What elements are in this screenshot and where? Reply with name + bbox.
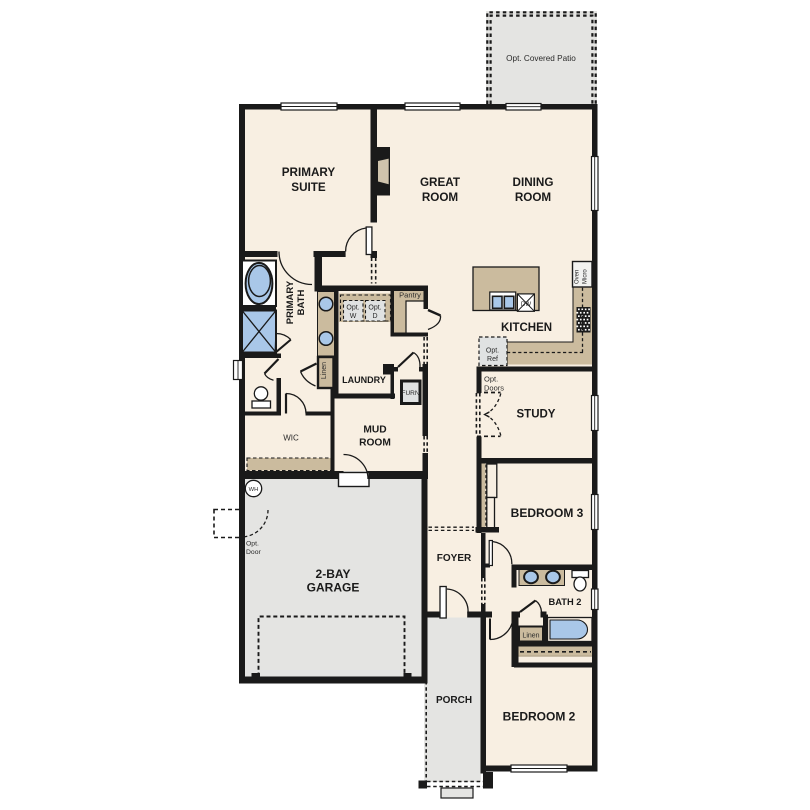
- svg-text:Opt.: Opt.: [486, 348, 499, 355]
- svg-text:Doors: Doors: [484, 384, 504, 393]
- svg-text:PRIMARY: PRIMARY: [285, 280, 296, 324]
- svg-text:DW: DW: [521, 301, 531, 308]
- svg-text:Opt.: Opt.: [346, 305, 359, 312]
- svg-text:Linen: Linen: [321, 362, 328, 379]
- svg-text:Ref: Ref: [487, 356, 498, 363]
- svg-text:LAUNDRY: LAUNDRY: [342, 375, 386, 385]
- svg-text:Opt.: Opt.: [246, 541, 259, 548]
- svg-text:WH: WH: [249, 487, 259, 493]
- svg-text:GARAGE: GARAGE: [307, 581, 360, 595]
- svg-text:BEDROOM 2: BEDROOM 2: [503, 710, 576, 724]
- svg-text:FURN: FURN: [401, 390, 419, 397]
- svg-text:ROOM: ROOM: [515, 191, 551, 204]
- svg-text:2-BAY: 2-BAY: [316, 567, 351, 581]
- svg-text:PORCH: PORCH: [436, 695, 472, 706]
- svg-text:Opt.: Opt.: [484, 375, 498, 384]
- svg-text:ROOM: ROOM: [359, 438, 391, 449]
- svg-text:KITCHEN: KITCHEN: [501, 322, 552, 334]
- svg-text:GREAT: GREAT: [420, 176, 461, 189]
- svg-text:ROOM: ROOM: [422, 191, 458, 204]
- svg-text:Micro: Micro: [583, 269, 589, 284]
- svg-text:Door: Door: [246, 549, 261, 556]
- svg-text:BATH: BATH: [296, 290, 307, 316]
- svg-text:Linen: Linen: [522, 633, 539, 640]
- svg-text:PRIMARY: PRIMARY: [282, 166, 336, 179]
- svg-text:SUITE: SUITE: [291, 181, 326, 194]
- svg-text:BEDROOM 3: BEDROOM 3: [511, 506, 584, 520]
- svg-text:Opt. Covered Patio: Opt. Covered Patio: [506, 54, 576, 63]
- svg-text:FOYER: FOYER: [437, 553, 472, 564]
- svg-text:Oven: Oven: [575, 270, 581, 284]
- svg-text:Opt.: Opt.: [368, 305, 381, 312]
- svg-text:Pantry: Pantry: [399, 291, 421, 300]
- svg-text:BATH 2: BATH 2: [549, 597, 582, 607]
- svg-text:DINING: DINING: [513, 176, 554, 189]
- svg-text:STUDY: STUDY: [517, 409, 556, 421]
- svg-text:MUD: MUD: [363, 425, 386, 436]
- svg-text:WIC: WIC: [283, 434, 299, 443]
- svg-text:D: D: [372, 313, 377, 320]
- svg-text:W: W: [350, 313, 357, 320]
